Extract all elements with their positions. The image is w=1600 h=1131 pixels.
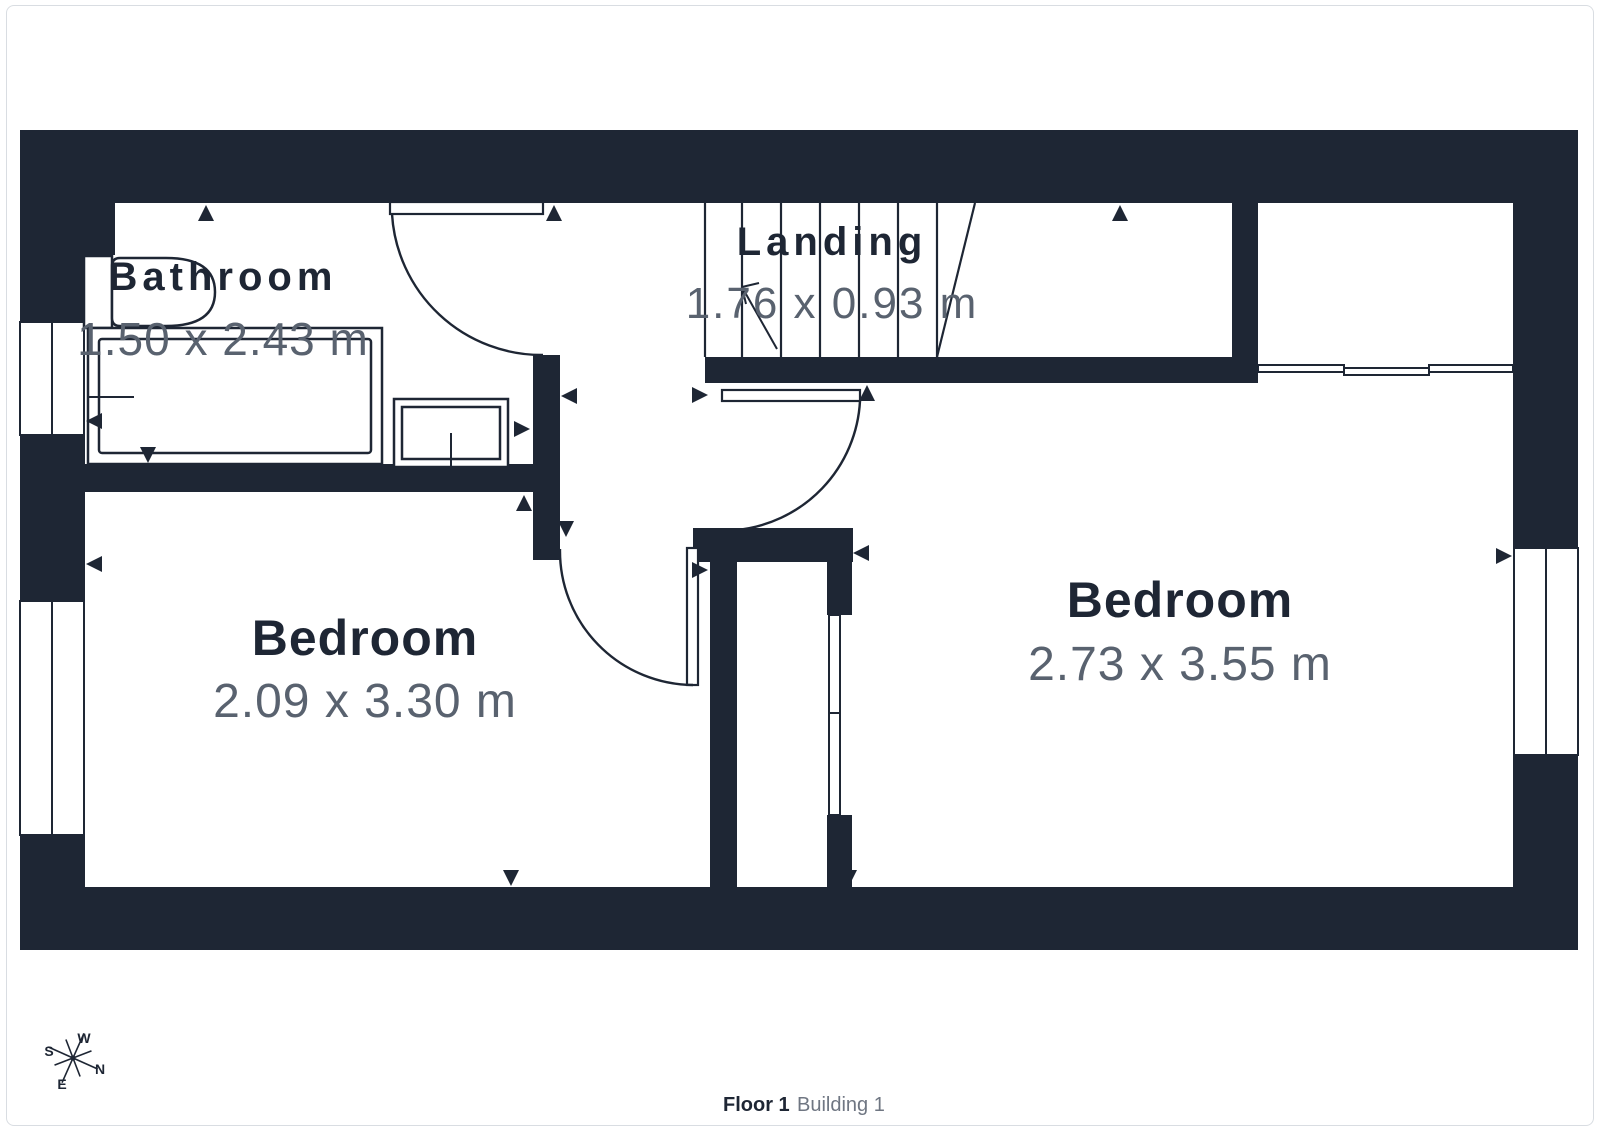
door-leaf: [722, 390, 860, 401]
footer-building-label: Building 1: [797, 1094, 885, 1116]
closet-sliding-doors: [1258, 365, 1513, 375]
room-name-bedroom1: Bedroom: [252, 610, 478, 666]
dim-arrow-up: [198, 205, 214, 221]
wall-right-upper: [1513, 130, 1578, 548]
wall-landing-bottom: [705, 357, 1258, 383]
dim-arrow-right: [1496, 548, 1512, 564]
door-swing-arc: [736, 401, 860, 530]
dim-arrow-down: [558, 521, 574, 537]
bedroom1-door: [560, 548, 698, 685]
room-name-landing: Landing: [737, 220, 928, 264]
room-name-bathroom: Bathroom: [109, 255, 338, 299]
sliding-panel: [1344, 368, 1429, 375]
door-swing-arc: [560, 549, 693, 685]
compass-center-dot: [70, 1055, 75, 1060]
compass-east-label: E: [57, 1076, 66, 1092]
dim-arrow-up: [859, 385, 875, 401]
party-wall-window: [829, 615, 840, 815]
wall-bedroom2-left-upper: [827, 562, 852, 615]
compass-north-label: N: [95, 1061, 105, 1077]
wall-top: [20, 130, 1578, 203]
dim-arrow-right: [514, 421, 530, 437]
sink: [394, 399, 508, 467]
dim-arrow-left: [86, 556, 102, 572]
floorplan-page: Bathroom 1.50 x 2.43 m Landing 1.76 x 0.…: [0, 0, 1600, 1131]
wall-bottom: [20, 887, 1578, 950]
door-swing-arc: [392, 214, 543, 355]
room-dims-bedroom2: 2.73 x 3.55 m: [1028, 638, 1332, 691]
bedroom1-window: [20, 601, 84, 835]
room-name-bedroom2: Bedroom: [1067, 572, 1293, 628]
dim-arrow-right: [692, 562, 708, 578]
bathroom-window: [20, 322, 84, 435]
compass-rose: W S N E: [37, 1022, 108, 1093]
dim-arrow-left: [853, 545, 869, 561]
wall-closet-left: [1232, 203, 1258, 383]
bathroom-door: [390, 202, 543, 355]
wall-connector-block: [693, 528, 853, 562]
dim-arrow-up: [516, 495, 532, 511]
room-dims-landing: 1.76 x 0.93 m: [686, 279, 979, 328]
wall-hall-stub: [533, 355, 560, 560]
room-dims-bedroom1: 2.09 x 3.30 m: [213, 675, 517, 728]
wall-left-upper: [20, 130, 85, 322]
wall-left-middle: [20, 435, 85, 601]
bedroom2-door: [722, 390, 860, 530]
footer: Floor 1 Building 1: [723, 1094, 885, 1116]
dim-arrow-down: [503, 870, 519, 886]
wall-bedroom1-right: [710, 562, 737, 887]
wall-corner-block: [85, 203, 115, 255]
sliding-panel: [1429, 365, 1513, 372]
floorplan-canvas: Bathroom 1.50 x 2.43 m Landing 1.76 x 0.…: [0, 0, 1600, 1131]
bedroom2-window: [1514, 548, 1578, 755]
dim-arrow-right: [692, 387, 708, 403]
window-frame: [829, 615, 840, 815]
room-dims-bathroom: 1.50 x 2.43 m: [77, 313, 369, 365]
dim-arrow-up: [546, 205, 562, 221]
sliding-panel: [1258, 365, 1344, 372]
dim-arrow-up: [1112, 205, 1128, 221]
compass-west-label: W: [77, 1030, 91, 1046]
dim-arrow-left: [561, 388, 577, 404]
compass-south-label: S: [44, 1043, 53, 1059]
footer-floor-label: Floor 1: [723, 1094, 790, 1116]
door-leaf: [390, 202, 543, 214]
